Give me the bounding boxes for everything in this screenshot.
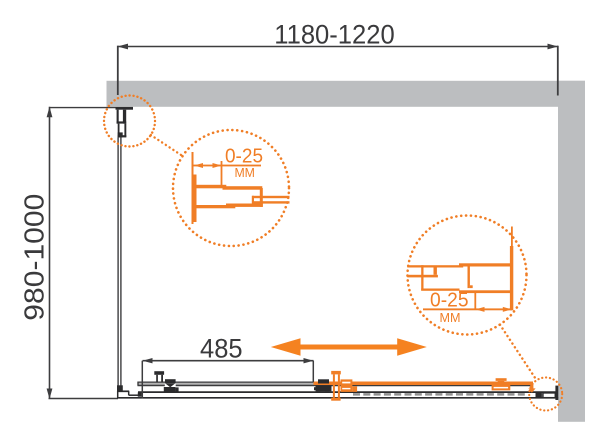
svg-text:0-25: 0-25 [430,288,469,311]
svg-text:MM: MM [440,310,461,325]
svg-text:980-1000: 980-1000 [19,194,50,321]
svg-text:MM: MM [234,165,255,180]
svg-text:1180-1220: 1180-1220 [274,19,395,49]
svg-text:485: 485 [200,333,243,363]
